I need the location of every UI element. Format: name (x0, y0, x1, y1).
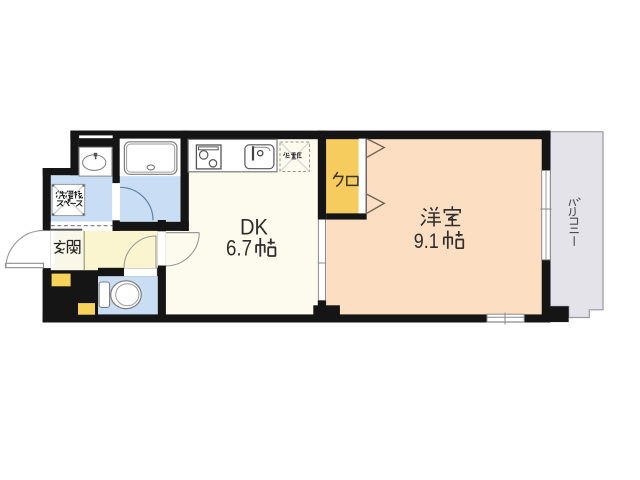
svg-text:9.1: 9.1 (414, 229, 439, 253)
svg-text:6.7: 6.7 (226, 235, 252, 260)
